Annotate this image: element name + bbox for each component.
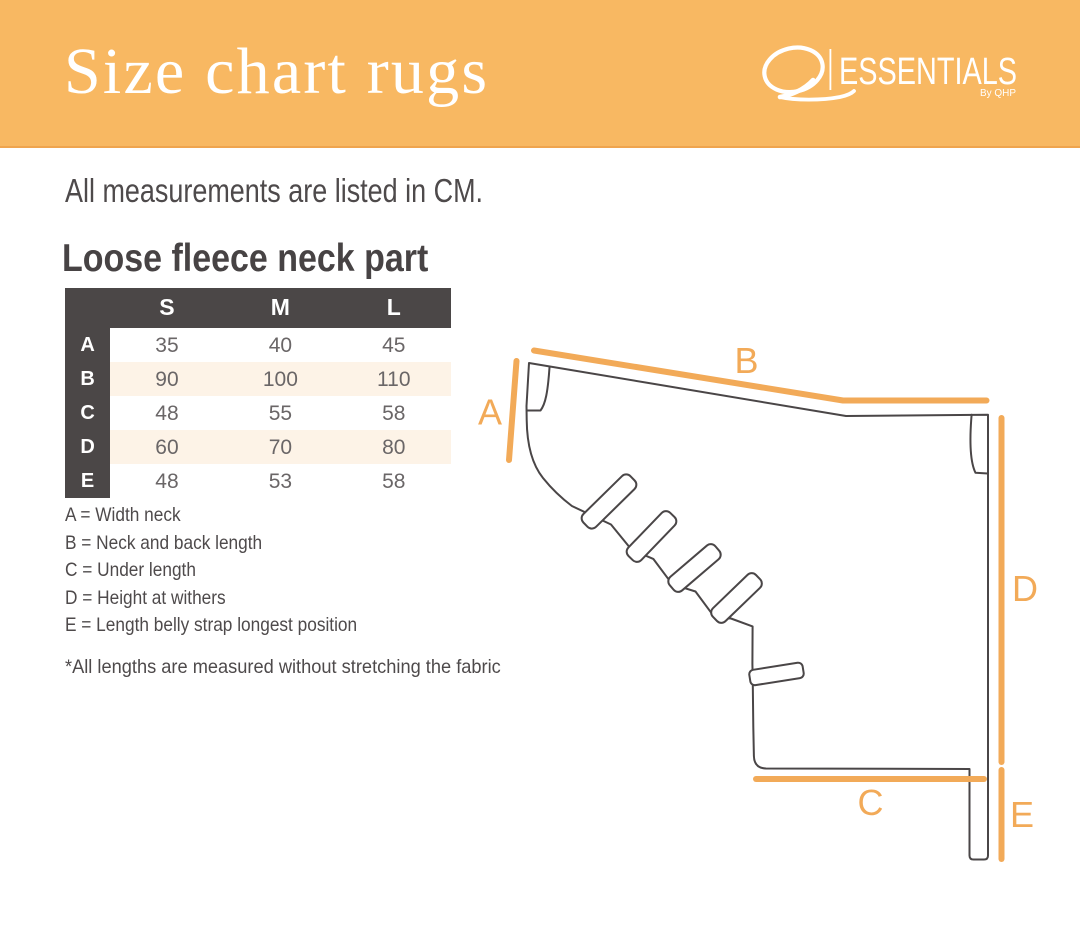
svg-text:D: D bbox=[1012, 568, 1038, 609]
svg-text:C: C bbox=[858, 782, 884, 823]
svg-text:B: B bbox=[734, 340, 758, 381]
svg-text:E: E bbox=[1010, 794, 1034, 835]
svg-text:A: A bbox=[478, 392, 502, 433]
